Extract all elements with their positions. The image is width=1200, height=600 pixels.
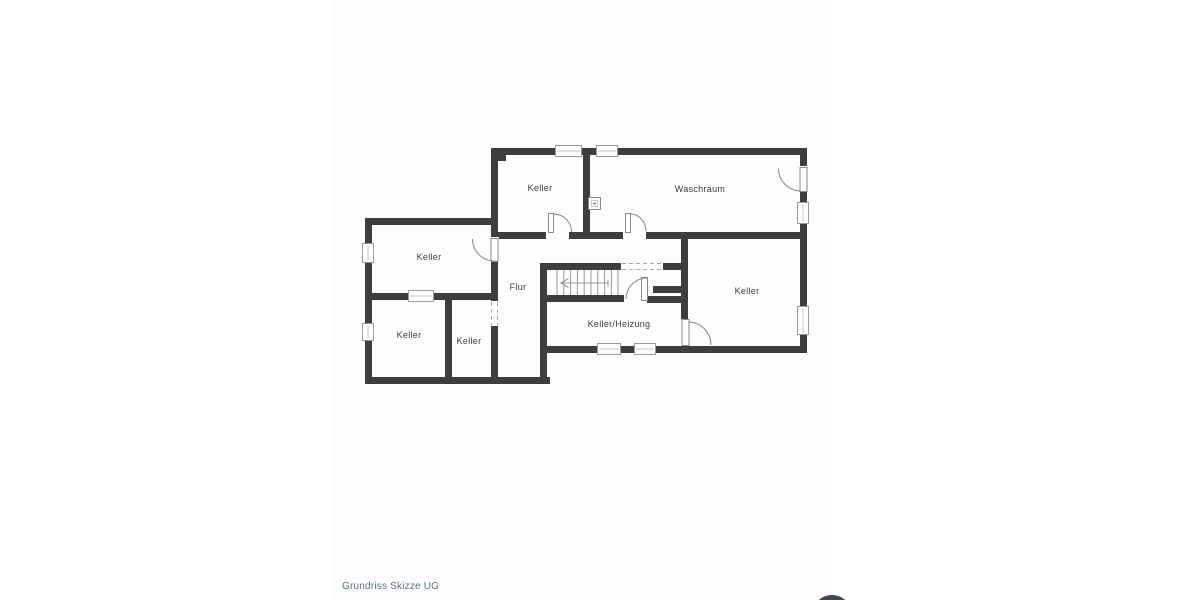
window bbox=[363, 244, 374, 263]
window bbox=[635, 344, 656, 355]
window bbox=[556, 146, 582, 157]
wall-left-exterior bbox=[365, 218, 372, 384]
wall-bottom-left-divider bbox=[445, 293, 452, 384]
wall-stair-top-left bbox=[540, 263, 622, 270]
drain-symbol bbox=[589, 198, 601, 210]
room-label-keller-small: Keller bbox=[457, 336, 482, 346]
wall-flur-right bbox=[540, 263, 547, 384]
room-label-flur: Flur bbox=[510, 282, 527, 292]
window bbox=[409, 291, 434, 302]
window bbox=[598, 344, 621, 355]
room-label-keller-top: Keller bbox=[528, 183, 553, 193]
chimney-marker bbox=[497, 152, 506, 161]
page: Keller Waschraum Keller Flur Keller Kell… bbox=[0, 0, 1200, 600]
plan-title: Grundriss Skizze UG bbox=[342, 581, 439, 592]
wall-left-section-top bbox=[365, 218, 498, 225]
staircase bbox=[557, 270, 618, 295]
walls-layer bbox=[365, 148, 807, 384]
wall-stair-bottom bbox=[540, 295, 625, 302]
room-label-keller-heizung: Keller/Heizung bbox=[588, 319, 651, 329]
opening-stair-head bbox=[621, 262, 663, 271]
door-keller-mid bbox=[473, 239, 499, 262]
door-waschraum-right bbox=[779, 168, 808, 192]
room-label-waschraum: Waschraum bbox=[675, 184, 725, 194]
wall-top-exterior bbox=[491, 148, 807, 155]
wall-keller-waschraum-divider bbox=[583, 148, 590, 239]
window bbox=[597, 146, 618, 157]
floorplan-drawing: Keller Waschraum Keller Flur Keller Kell… bbox=[0, 0, 1200, 600]
window bbox=[363, 324, 374, 341]
wall-flur-left bbox=[491, 148, 498, 384]
room-label-keller-bottom-left: Keller bbox=[397, 330, 422, 340]
door-keller-right bbox=[682, 320, 711, 346]
wall-bottom-right-exterior bbox=[540, 346, 807, 353]
door-keller-top bbox=[549, 214, 572, 233]
room-label-keller-right: Keller bbox=[735, 286, 760, 296]
window bbox=[798, 307, 809, 335]
wall-left-section-bottom bbox=[365, 377, 550, 384]
door-waschraum bbox=[626, 214, 647, 233]
window bbox=[798, 203, 809, 224]
room-label-keller-mid-left: Keller bbox=[417, 252, 442, 262]
wall-upper-divider bbox=[491, 232, 807, 239]
